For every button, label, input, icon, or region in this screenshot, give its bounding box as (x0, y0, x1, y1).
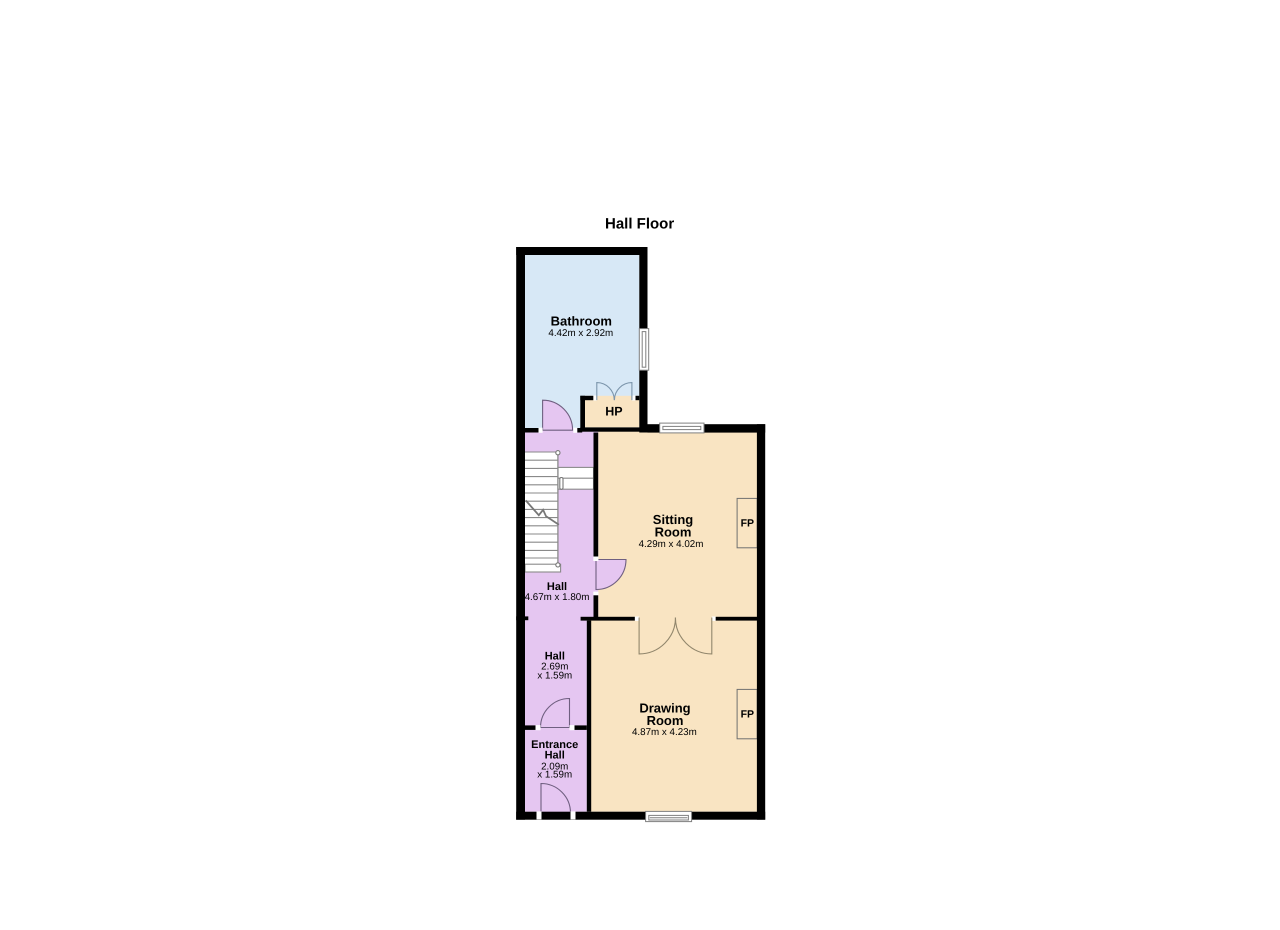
svg-text:HP: HP (605, 404, 622, 418)
svg-text:Room: Room (655, 525, 692, 540)
svg-text:FP: FP (741, 517, 754, 529)
svg-text:x 1.59m: x 1.59m (537, 769, 572, 780)
svg-text:4.67m x 1.80m: 4.67m x 1.80m (525, 592, 590, 603)
svg-text:4.87m x 4.23m: 4.87m x 4.23m (632, 727, 697, 738)
svg-text:Hall Floor: Hall Floor (605, 216, 674, 233)
svg-text:FP: FP (741, 708, 754, 720)
svg-text:4.29m x 4.02m: 4.29m x 4.02m (639, 539, 704, 550)
svg-text:4.42m x 2.92m: 4.42m x 2.92m (548, 328, 613, 339)
svg-text:Bathroom: Bathroom (551, 313, 612, 328)
svg-text:Hall: Hall (545, 750, 565, 762)
svg-text:x 1.59m: x 1.59m (537, 670, 572, 681)
svg-text:Room: Room (647, 713, 684, 728)
